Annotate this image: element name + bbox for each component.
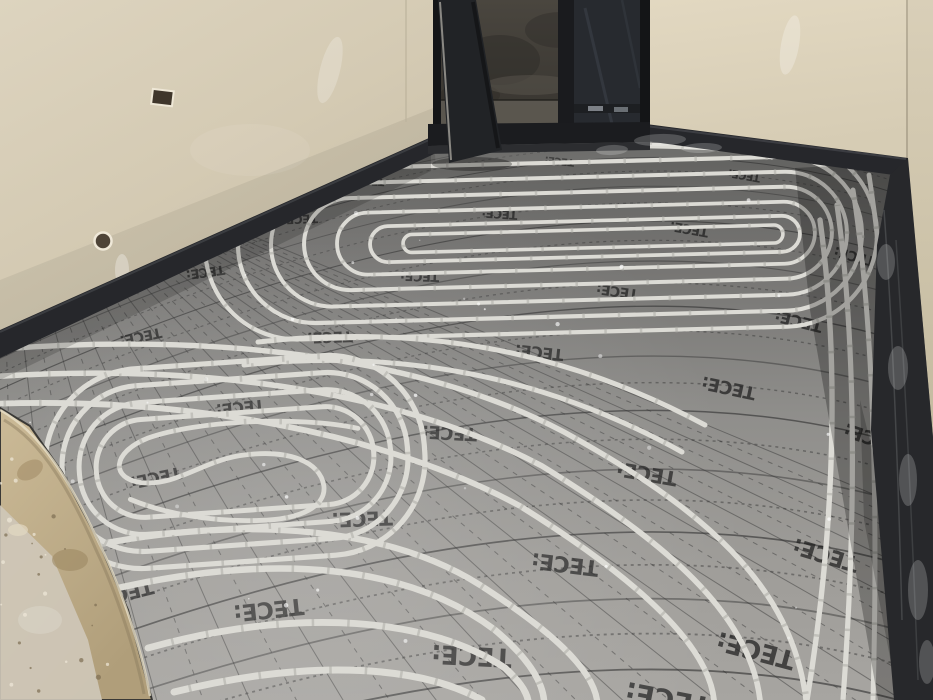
speck [777,294,780,297]
masonry-patch [8,524,28,536]
masonry-patch [18,606,62,634]
speck [147,402,149,404]
masonry-speck [96,675,101,680]
speck [419,240,420,241]
glass-bottom-rail [574,104,642,113]
door-leaf-shadow [432,157,512,171]
masonry-speck [1,560,5,564]
speck [395,318,397,320]
scene-svg: TECE:TECE:TECE:TECE:TECE:TECE:TECE:TECE:… [0,0,933,700]
room-photo: TECE:TECE:TECE:TECE:TECE:TECE:TECE:TECE:… [0,0,933,700]
masonry-speck [65,661,68,664]
masonry-speck [79,658,83,662]
masonry-speck [91,625,93,627]
speck [598,354,602,358]
wall-scuff [190,124,310,176]
speck [827,517,831,521]
masonry-speck [43,592,47,596]
speck [354,211,358,215]
speck [204,377,208,381]
speck [351,261,354,264]
speck [316,589,319,592]
speck [463,298,465,300]
masonry-speck [37,573,40,576]
masonry-speck [14,479,18,483]
wall-socket-hole [151,89,174,106]
masonry-speck [33,533,36,536]
masonry-speck [94,604,97,607]
door-mid-stile [558,0,574,126]
masonry-speck [40,555,43,558]
speck [620,265,624,269]
speck [404,639,408,643]
speck [291,318,294,321]
speck [647,446,651,450]
speck [787,636,790,639]
speck [795,607,797,609]
masonry-speck [10,683,14,687]
rail-bright-tab [614,107,628,112]
masonry-speck [10,457,13,460]
masonry-speck [31,543,33,545]
speck [414,394,418,398]
film-glint [899,454,917,506]
masonry-speck [18,641,21,644]
rail-bright-tab [588,106,603,111]
speck [244,274,246,276]
masonry-speck [37,689,40,692]
speck [262,463,265,466]
masonry-speck [23,613,27,617]
door-right-jamb [640,0,650,128]
speck [285,495,289,499]
speck [464,487,466,489]
speck [248,598,249,599]
masonry-speck [0,604,2,606]
speck [175,504,179,508]
speck [370,393,374,397]
masonry-speck [64,548,66,550]
masonry-patch [52,549,88,571]
masonry-speck [51,514,55,518]
speck [827,433,830,436]
speck [284,603,289,608]
speck [555,322,559,326]
film-glint [877,244,895,280]
speck [605,565,608,568]
speck [29,421,31,423]
masonry-speck [30,667,32,669]
masonry-speck [106,663,109,666]
speck [477,302,480,305]
speck [372,364,374,366]
film-glint [888,346,908,390]
film-glint [908,560,928,620]
masonry-speck [45,554,47,556]
wall-round-hole [95,233,112,250]
speck [71,479,75,483]
speck [484,308,486,310]
speck [747,198,751,202]
masonry-speck [4,533,7,536]
masonry-speck [7,518,12,523]
speck [356,516,360,520]
